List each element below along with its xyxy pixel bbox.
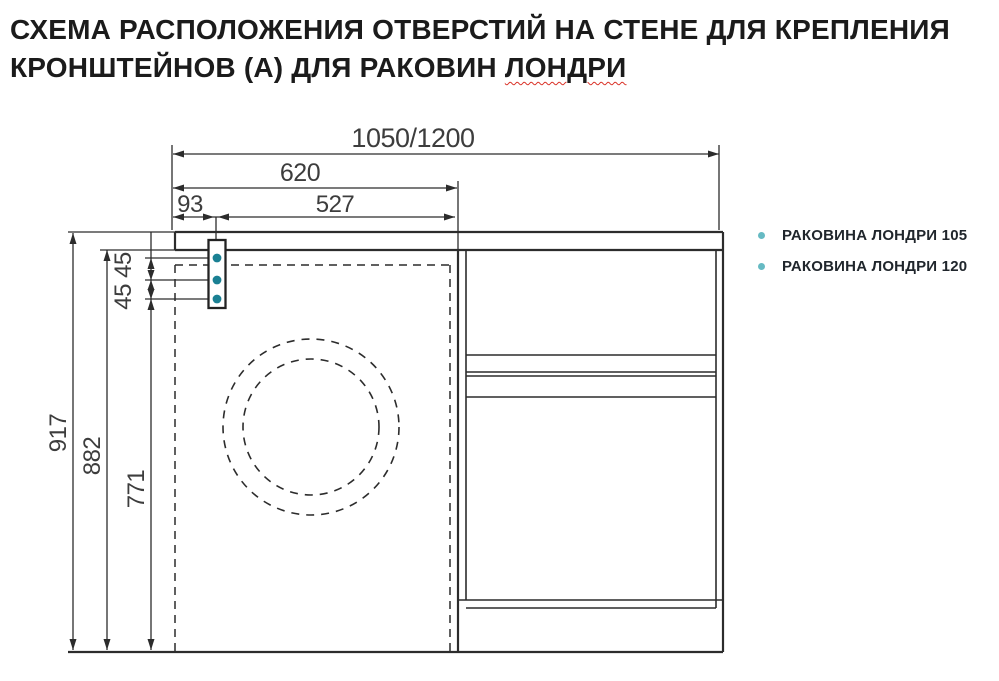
drum-outer-circle (223, 339, 399, 515)
bracket (209, 240, 226, 308)
dimension-arrows (70, 151, 720, 651)
bullet-icon (758, 232, 765, 239)
installation-diagram: 1050/1200 620 93 527 917 882 771 45 45 (0, 0, 999, 681)
legend-item-londri-120: РАКОВИНА ЛОНДРИ 120 (758, 251, 967, 282)
bracket-hole-top (213, 254, 222, 263)
dim-917-label: 917 (45, 414, 72, 453)
bracket-hole-bottom (213, 295, 222, 304)
legend-label: РАКОВИНА ЛОНДРИ 120 (782, 258, 967, 275)
dim-total-width-label: 1050/1200 (351, 123, 474, 153)
bracket-hole-middle (213, 276, 222, 285)
dimension-labels: 1050/1200 620 93 527 917 882 771 45 45 (45, 123, 475, 508)
dim-45-45-label: 45 45 (110, 252, 137, 310)
drum-dashed-circles (223, 339, 399, 515)
cabinet-outline (68, 232, 723, 652)
dim-771-label: 771 (123, 470, 150, 509)
bullet-icon (758, 263, 765, 270)
legend-item-londri-105: РАКОВИНА ЛОНДРИ 105 (758, 220, 967, 251)
legend: РАКОВИНА ЛОНДРИ 105 РАКОВИНА ЛОНДРИ 120 (758, 220, 967, 282)
extension-lines (68, 145, 719, 299)
page: СХЕМА РАСПОЛОЖЕНИЯ ОТВЕРСТИЙ НА СТЕНЕ ДЛ… (0, 0, 999, 681)
drum-inner-circle (243, 359, 379, 495)
dim-527-label: 527 (316, 191, 355, 218)
dim-93-label: 93 (177, 191, 203, 218)
dim-882-label: 882 (79, 437, 106, 476)
dim-620-label: 620 (280, 159, 320, 187)
legend-label: РАКОВИНА ЛОНДРИ 105 (782, 227, 967, 244)
appliance-dashed-outline (175, 265, 450, 651)
